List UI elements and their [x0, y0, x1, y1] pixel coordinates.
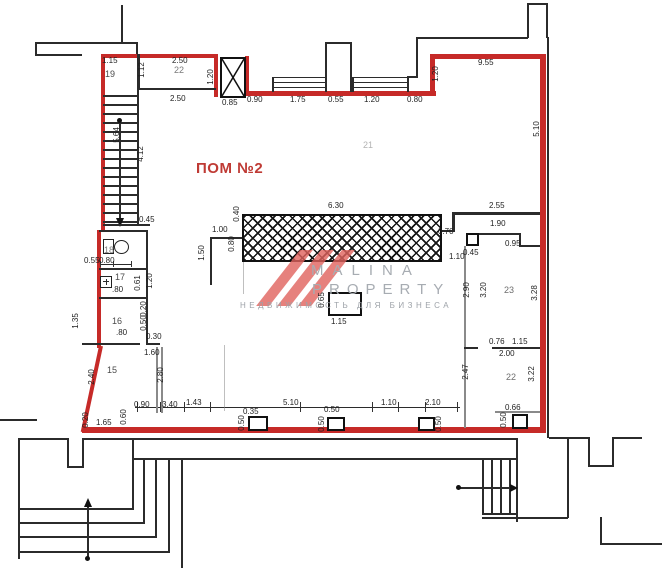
stair-tread	[103, 113, 137, 115]
column	[327, 417, 345, 431]
dimension-label: 2.90	[463, 282, 471, 298]
column	[248, 416, 268, 431]
dimension-label: 6.30	[328, 202, 344, 210]
room-label: 17	[115, 273, 125, 282]
dimension-label: 0.80	[407, 96, 423, 104]
building-outline	[82, 438, 84, 468]
room-label: 15	[107, 366, 117, 375]
building-outline	[67, 438, 69, 468]
room-label: 21	[363, 141, 373, 150]
column	[512, 414, 528, 429]
dimension-label: 0.90	[247, 96, 263, 104]
arrow-start-dot	[117, 118, 122, 123]
building-outline	[546, 3, 548, 38]
floor-plan: MALINA PROPERTY НЕДВИЖИМОСТЬ ДЛЯ БИЗНЕСА…	[0, 0, 666, 568]
boundary-wall	[101, 54, 218, 58]
wall-segment	[224, 345, 225, 411]
dimension-label: 0.90	[134, 401, 150, 409]
dimension-label: 2.47	[462, 364, 470, 380]
dimension-label: 1.15	[102, 57, 118, 65]
dimension-label: 2.55	[489, 202, 505, 210]
dimension-label: 0.50	[324, 406, 340, 414]
building-outline	[527, 3, 529, 38]
dimension-label: 1.20	[364, 96, 380, 104]
wall-segment	[99, 268, 148, 270]
staircase	[18, 522, 144, 524]
dimension-label: 0.20	[82, 412, 90, 428]
wall-segment	[479, 233, 519, 235]
staircase	[155, 458, 157, 538]
wall-segment	[82, 343, 140, 345]
wall-segment	[99, 230, 148, 232]
dimension-label: 1.20	[207, 69, 215, 85]
dimension-label: 1.20	[146, 273, 154, 289]
staircase	[482, 458, 516, 460]
stair-tread	[103, 95, 137, 97]
dimension-label: 1.15	[331, 318, 347, 326]
dimension-tick	[457, 402, 458, 412]
direction-arrow	[87, 505, 89, 560]
dimension-label: 1.75	[290, 96, 306, 104]
staircase	[482, 513, 516, 515]
dimension-label: 1.00	[212, 226, 228, 234]
room-label: 23	[504, 286, 514, 295]
wall-segment	[519, 245, 540, 247]
dimension-label: 0.45	[139, 216, 155, 224]
window	[352, 82, 408, 83]
dimension-label: 1.12	[138, 62, 146, 78]
premises-title: ПОМ №2	[196, 160, 263, 177]
staircase	[143, 458, 145, 524]
dimension-label: 1.43	[186, 399, 202, 407]
staircase	[18, 508, 132, 510]
dimension-label: 5.10	[533, 121, 541, 137]
building-outline	[567, 438, 569, 518]
dimension-label: 0.30	[146, 333, 162, 341]
arrow-start-dot	[456, 485, 461, 490]
dimension-label: 0.55	[84, 257, 100, 265]
building-outline	[612, 437, 642, 439]
window	[272, 82, 325, 83]
stair-tread	[103, 104, 137, 106]
dimension-label: 0.61	[134, 275, 142, 291]
dimension-tick	[300, 402, 301, 412]
window	[352, 77, 408, 78]
dimension-label: 2.80	[157, 367, 165, 383]
staircase	[132, 438, 134, 510]
wall-segment	[452, 212, 540, 215]
dimension-label: 1.65	[96, 419, 112, 427]
dimension-label: 2.00	[499, 350, 515, 358]
building-outline	[18, 438, 67, 440]
boundary-wall	[540, 54, 546, 433]
dimension-label: 0.80	[99, 257, 115, 265]
room-label: 22	[506, 373, 516, 382]
building-outline	[527, 3, 548, 5]
dimension-label: 0.80	[228, 236, 236, 252]
building-outline	[588, 465, 613, 467]
window	[272, 87, 325, 88]
dimension-label: 3.22	[528, 366, 536, 382]
building-outline	[67, 466, 84, 468]
building-outline	[588, 437, 590, 467]
building-outline	[416, 37, 528, 39]
dimension-label: 1.10	[449, 253, 465, 261]
building-outline	[121, 5, 123, 43]
dimension-label: 1.60	[144, 349, 160, 357]
boundary-wall	[97, 230, 101, 348]
dimension-label: 0.55	[328, 96, 344, 104]
arrow-head-icon	[510, 484, 518, 492]
wall-segment	[464, 246, 466, 428]
building-outline	[547, 37, 549, 438]
dimension-tick	[398, 402, 399, 412]
elevator-x-icon	[222, 59, 244, 96]
dimension-label: 5.64	[113, 127, 121, 143]
arrow-start-dot	[85, 556, 90, 561]
dimension-tick	[372, 402, 373, 412]
wall-segment	[210, 237, 212, 285]
window	[352, 87, 408, 88]
pillar-outline	[325, 42, 327, 92]
room-label: 22	[174, 66, 184, 75]
building-outline	[35, 54, 82, 56]
dimension-label: 1.50	[198, 245, 206, 261]
column	[466, 233, 479, 246]
room-label: 18	[104, 246, 114, 255]
wall-segment	[464, 347, 478, 349]
pillar-outline	[325, 42, 352, 44]
building-outline	[0, 419, 37, 421]
dimension-label: 0.65	[318, 292, 326, 308]
dimension-label: 0.60	[120, 409, 128, 425]
sink-fixture	[106, 279, 107, 285]
room-label: 19	[105, 70, 115, 79]
boundary-wall	[82, 427, 546, 433]
elevator-shaft	[220, 57, 246, 98]
dimension-label: 2.50	[172, 57, 188, 65]
dimension-label: 0.50	[435, 416, 443, 432]
dimension-label: .80	[112, 286, 123, 294]
dimension-label: 5.10	[283, 399, 299, 407]
dimension-label: 0.50	[140, 315, 148, 331]
dimension-label: 1.15	[512, 338, 528, 346]
window	[352, 77, 354, 92]
dimension-label: 3.40	[162, 401, 178, 409]
building-outline	[136, 42, 138, 54]
wall-segment	[99, 297, 148, 299]
wall-segment	[139, 88, 216, 90]
dimension-label: 0.85	[222, 99, 238, 107]
building-outline	[600, 543, 662, 545]
toilet-fixture	[114, 240, 129, 254]
watermark-brand: PROPERTY	[312, 281, 450, 298]
dimension-tick	[131, 261, 132, 267]
column	[418, 417, 435, 431]
dimension-label: 1.20	[432, 66, 440, 82]
dimension-label: 1.10	[381, 399, 397, 407]
wall-segment	[103, 224, 150, 226]
dimension-label: 9.55	[478, 59, 494, 67]
arrow-head-icon	[84, 498, 92, 507]
dimension-label: 0.45	[463, 249, 479, 257]
dimension-label: 1.90	[490, 220, 506, 228]
dimension-label: 0.95	[505, 240, 521, 248]
dimension-label: 0.40	[233, 206, 241, 222]
dimension-label: 0.50	[318, 416, 326, 432]
building-outline	[407, 76, 409, 92]
watermark-brand: MALINA	[311, 262, 421, 279]
staircase	[181, 458, 183, 568]
building-outline	[416, 37, 418, 78]
wall-segment	[148, 343, 160, 345]
building-outline	[549, 437, 588, 439]
boundary-wall	[101, 54, 105, 232]
staircase	[18, 438, 20, 559]
building-outline	[83, 438, 518, 440]
dimension-label: 1.35	[72, 313, 80, 329]
room-label: 16	[112, 317, 122, 326]
building-outline	[482, 517, 568, 519]
dimension-label: 3.28	[531, 285, 539, 301]
staircase	[168, 458, 170, 553]
direction-arrow	[458, 487, 512, 489]
building-outline	[612, 437, 614, 467]
watermark-tagline: НЕДВИЖИМОСТЬ ДЛЯ БИЗНЕСА	[240, 301, 452, 310]
building-outline	[132, 458, 482, 460]
dimension-label: 2.10	[425, 399, 441, 407]
building-outline	[516, 438, 518, 522]
dimension-label: 2.40	[88, 369, 96, 385]
dimension-label: 3.20	[480, 282, 488, 298]
building-outline	[600, 517, 602, 545]
dimension-label: 4.12	[137, 146, 145, 162]
dimension-label: 0.70	[438, 228, 454, 236]
dimension-label: 0.76	[489, 338, 505, 346]
staircase	[18, 551, 169, 553]
dimension-label: 0.50	[238, 415, 246, 431]
window	[272, 77, 274, 92]
dimension-label: 0.50	[500, 412, 508, 428]
dimension-tick	[210, 402, 211, 412]
dimension-label: .80	[116, 329, 127, 337]
dimension-tick	[184, 402, 185, 412]
window	[272, 77, 325, 78]
dimension-label: 2.50	[170, 95, 186, 103]
